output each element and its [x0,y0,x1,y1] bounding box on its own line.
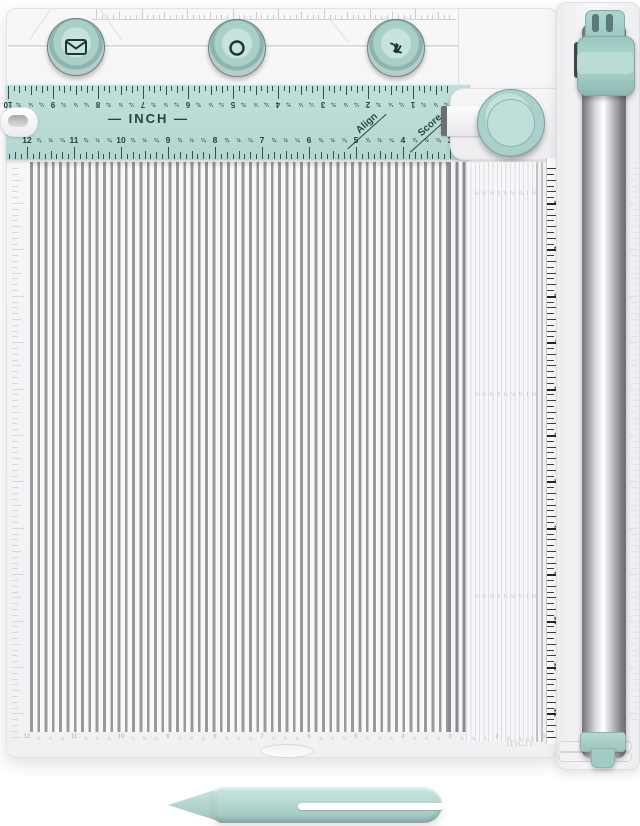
tick [12,423,18,424]
tick [31,86,32,95]
tick [413,86,414,99]
tick [12,696,18,697]
embossed-mini-ruler: ¼ ½ ¾ 2 ¼ ½ ¾ 1 ¼ [466,392,546,398]
tick [633,719,637,720]
tick [115,154,116,159]
tick [12,534,18,535]
tick [12,557,18,558]
tick [12,673,18,674]
tick [629,667,637,668]
tick [12,516,18,517]
tick [12,597,21,598]
tick [323,86,324,99]
tick [633,557,637,558]
tick [12,551,21,552]
tick [633,470,637,471]
tick [444,154,445,159]
tick [171,86,172,91]
tick [303,154,304,159]
stylus-slot [298,803,443,810]
tick [12,626,18,627]
tick [12,632,18,633]
tick [547,313,554,314]
tick [633,186,637,187]
tick [12,708,18,709]
tick [109,86,110,93]
tick [631,365,637,366]
tick [278,86,279,99]
tick [631,597,637,598]
tick [227,86,228,91]
tick [164,12,165,19]
tick [80,154,81,159]
tick [12,510,18,511]
tick [216,86,217,91]
tick [12,360,18,361]
tick [633,539,637,540]
tick [239,86,240,91]
tick [633,313,637,314]
tick [103,154,104,159]
tick [12,621,24,622]
tick [547,626,554,627]
tick [633,493,637,494]
tick [177,86,178,93]
tick [547,406,554,407]
tick [121,86,122,95]
tick [133,152,134,159]
tick [12,342,24,343]
tick [368,86,369,99]
tick [180,152,181,159]
tick [162,154,163,159]
tick [633,441,637,442]
tick [68,154,69,159]
tick [12,406,18,407]
tick [547,731,554,732]
tick [121,147,122,159]
tick [12,244,18,245]
tick [631,458,637,459]
tick [12,203,24,204]
tick [368,152,369,159]
tick [629,481,637,482]
tick [315,154,316,159]
tick [633,209,637,210]
tick [150,154,151,159]
tick [633,162,637,163]
tick [262,147,263,159]
tick [12,226,21,227]
tick [633,371,637,372]
tick [633,592,637,593]
tick [547,267,554,268]
tick [391,86,392,95]
tick [12,574,24,575]
tick [547,487,554,488]
tick [629,296,637,297]
tick [39,152,40,159]
tick [215,147,216,159]
tick [12,580,18,581]
tick [633,302,637,303]
tick [633,215,637,216]
tick [633,255,637,256]
tick [12,493,18,494]
tick [430,86,431,91]
tick [407,86,408,91]
tick [633,429,637,430]
tick [12,383,18,384]
tick [633,522,637,523]
tick [12,667,24,668]
tick [12,470,18,471]
tick [547,638,554,639]
tick [344,152,345,159]
tick [12,505,21,506]
tick [633,626,637,627]
tick [187,9,188,19]
tick [633,238,637,239]
tick [145,151,146,159]
tick [633,348,637,349]
tick [12,429,18,430]
tick [321,152,322,159]
circle-icon [225,36,249,60]
tick [312,86,313,93]
tick [633,684,637,685]
tick [633,603,637,604]
tick [12,452,18,453]
tick [631,226,637,227]
tick [222,86,223,93]
tick [547,545,554,546]
tick [286,151,287,159]
tick [317,86,318,91]
tick [362,86,363,91]
tick [12,481,24,482]
tick [21,154,22,159]
tick [633,632,637,633]
tick [633,400,637,401]
tick [203,152,204,159]
tick [547,220,554,221]
tick [424,86,425,93]
tick [633,244,637,245]
tick [633,406,637,407]
tick [633,586,637,587]
tick [631,505,637,506]
tick [239,151,240,159]
tick [12,539,18,540]
tick [629,203,637,204]
tick [12,719,18,720]
tick [194,86,195,91]
tick [12,586,18,587]
tick [547,394,554,395]
embossed-mini-ruler: ¼ ½ ¾ 2 ¼ ½ ¾ 1 ¼ [466,594,546,600]
tick [12,278,18,279]
tick [12,255,18,256]
tick [12,215,18,216]
tick [633,499,637,500]
tick [547,302,554,303]
tick [12,447,18,448]
tick [267,86,268,93]
tick [186,154,187,159]
tick [12,603,18,604]
tick [633,377,637,378]
tick [547,650,554,651]
tick [12,377,18,378]
tick [629,574,637,575]
tick [8,86,9,99]
tick [633,545,637,546]
tick [233,9,234,19]
tick [633,487,637,488]
tick [291,154,292,159]
tick [149,86,150,91]
tick [346,86,347,95]
tick [12,731,18,732]
tick [104,86,105,91]
tick [12,545,18,546]
tick [98,86,99,99]
tick [12,499,18,500]
tick [12,365,21,366]
tick [356,147,357,159]
envelope-icon [63,36,89,58]
tick [374,86,375,91]
tick [19,86,20,93]
tick [385,154,386,159]
tick [547,719,554,720]
thumb-notch [260,744,314,758]
inch-label: — INCH — [108,111,248,126]
tick [12,284,18,285]
tick [27,147,28,159]
tick [547,186,554,187]
tick [547,255,554,256]
tick [629,389,637,390]
rail-bottom-slider-stem [591,748,615,768]
tick [70,86,71,91]
tick [12,528,24,529]
tick [547,232,554,233]
tick [86,152,87,159]
tick [631,412,637,413]
tick [633,661,637,662]
tick [631,319,637,320]
tick [12,249,24,250]
tick [205,86,206,91]
tick [547,592,554,593]
tick [547,174,554,175]
tick [12,313,18,314]
tick [438,12,439,19]
tick [76,86,77,95]
tick [12,435,24,436]
cutter-head-slot [606,14,613,32]
tick [324,9,325,19]
tick [631,551,637,552]
tick [633,702,637,703]
tick [12,325,18,326]
tick [547,209,554,210]
tick [629,621,637,622]
tick [633,673,637,674]
tick [12,389,24,390]
tick [351,86,352,91]
tick [25,86,26,91]
tick [415,9,416,19]
tick [12,400,18,401]
tick [403,147,404,159]
tick [256,86,257,95]
tick [256,154,257,159]
tick [115,86,116,91]
tick [338,154,339,159]
tick [357,86,358,93]
dial-face [487,99,535,147]
tick [244,154,245,159]
tick [53,86,54,99]
tick [547,673,554,674]
tick [633,267,637,268]
tick [633,696,637,697]
tick [45,154,46,159]
tick [119,12,120,19]
tick [12,725,18,726]
tick [12,197,18,198]
tick [633,464,637,465]
cutter-head-slot [592,14,599,32]
tick [12,267,18,268]
tick [633,197,637,198]
tick [329,86,330,91]
tick [402,86,403,93]
tick [12,412,21,413]
tick [42,86,43,93]
tick [633,278,637,279]
tick [547,557,554,558]
tick [633,580,637,581]
tick [92,86,93,91]
tick [629,249,637,250]
tick [137,86,138,91]
tick [12,220,18,221]
tick [12,615,18,616]
tick [396,86,397,91]
tick [12,296,24,297]
tick [633,650,637,651]
tick [547,499,554,500]
tick [362,154,363,159]
tick [415,152,416,159]
tick [633,383,637,384]
tick [633,708,637,709]
tick [12,638,18,639]
tick [12,487,18,488]
tick [633,232,637,233]
tick [12,186,18,187]
tick [370,9,371,19]
punch-button-circle [208,19,266,77]
tick [12,191,18,192]
tick [250,152,251,159]
tick [633,220,637,221]
tick [109,152,110,159]
tick [547,325,554,326]
tick [12,371,18,372]
tick [64,86,65,93]
tick [374,154,375,159]
tick [633,534,637,535]
tick [633,615,637,616]
tick [12,476,18,477]
tick [98,151,99,159]
tick [87,86,88,93]
tick [334,86,335,93]
tick [633,290,637,291]
tick [154,86,155,93]
tick [143,86,144,99]
tick [633,447,637,448]
tick [12,261,18,262]
tick [297,152,298,159]
tick [156,152,157,159]
tick [142,9,143,19]
tick [261,86,262,91]
tick [301,86,302,95]
tick [12,348,18,349]
tick [421,154,422,159]
paper-stop-slot-opening [8,115,28,127]
tick [633,679,637,680]
tick [12,655,18,656]
tick [438,152,439,159]
tick [199,86,200,93]
tick [244,86,245,93]
tick [385,86,386,91]
tick [633,336,637,337]
tick [432,154,433,159]
tick [12,273,21,274]
tick [629,342,637,343]
tick [284,86,285,91]
tick [12,441,18,442]
tick [392,12,393,19]
tick [547,371,554,372]
tick [166,86,167,95]
tick [547,684,554,685]
tick [174,154,175,159]
tick [633,354,637,355]
tick [380,151,381,159]
tick [188,86,189,99]
tick [127,154,128,159]
tick [309,147,310,159]
tick [132,86,133,93]
tick [256,12,257,19]
cutting-rail [582,24,626,758]
fine-groove-edge [536,162,546,742]
tick [12,568,18,569]
bow-icon [384,36,408,60]
tick [441,86,442,91]
tick [12,522,18,523]
tick [301,12,302,19]
